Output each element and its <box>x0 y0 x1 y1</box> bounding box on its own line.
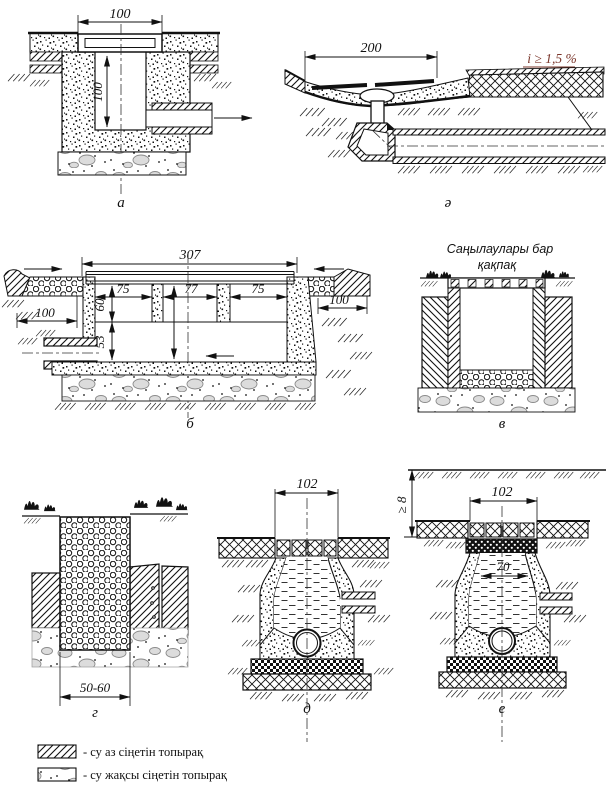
diagram-d-well-section: 102 ≥ 8 д <box>217 470 420 742</box>
dim-label-b-60: 60 <box>92 298 107 312</box>
dim-label-b-75r: 75 <box>252 281 266 296</box>
dim-label-b-75l: 75 <box>117 281 131 296</box>
pipe-stub <box>538 600 572 607</box>
dim-label-d-width: 102 <box>297 477 318 492</box>
slope-label: i ≥ 1,5 % <box>527 51 576 66</box>
pipe-stub <box>340 599 375 606</box>
pavement-left <box>30 33 78 52</box>
baffle <box>217 284 230 322</box>
ground-hachures <box>8 74 231 88</box>
permeable-soil <box>418 388 575 412</box>
diagram-letter-v: в <box>499 416 506 432</box>
shoulder-wedge <box>285 70 305 93</box>
dim-label-g-width: 50-60 <box>80 680 111 695</box>
pavement-left <box>219 538 275 558</box>
outlet-pipe <box>146 110 212 127</box>
legend: - су аз сіңетін топырақ - су жақсы сіңет… <box>38 745 228 782</box>
gravel-strip-left <box>22 277 83 296</box>
dim-label-b-width: 307 <box>179 248 202 263</box>
dim-label-b-100l: 100 <box>35 305 55 320</box>
gravel-bed <box>58 152 186 175</box>
diagram-letter-a: а <box>117 195 125 211</box>
dim-label-b-100r: 100 <box>329 292 349 307</box>
pit-wall-outer-right <box>545 297 572 388</box>
pit-wall-outer-left <box>422 297 448 388</box>
filter-layer <box>466 539 537 553</box>
concrete-pit-walls <box>62 52 190 152</box>
slotted-cover <box>448 278 545 288</box>
gravel-column <box>60 517 130 650</box>
drop-pipe <box>371 101 384 125</box>
diagram-letter-d: д <box>303 701 311 717</box>
grate-bar <box>375 81 434 85</box>
dim-label-d-depth: ≥ 8 <box>394 496 409 513</box>
diagram-letter-b: б <box>186 416 194 432</box>
cover-caption-line1: Саңылаулары бар <box>447 242 553 256</box>
diagram-v-pit-section: Саңылаулары бар қақпақ в <box>418 242 575 432</box>
drain-pipe-wall <box>393 157 605 164</box>
pavement-right <box>537 521 588 538</box>
diagram-letter-g: г <box>92 705 98 721</box>
diagram-e-well-section: 102 70 е <box>408 470 606 742</box>
road-base <box>466 72 603 97</box>
diagram-letter-e: е <box>499 701 506 717</box>
dim-label-a2-width: 200 <box>361 41 382 56</box>
drainage-structures-figure: 100 100 а 200 i ≥ 1,5 % <box>0 0 607 794</box>
inlet-pipe <box>28 346 97 361</box>
tank-floor <box>52 362 316 375</box>
dim-label-e-width: 102 <box>492 485 513 500</box>
gravel-bed <box>62 375 315 401</box>
well-cover-grate <box>277 540 336 556</box>
pit-wall-inner-right <box>533 288 545 388</box>
legend-text-low-permeability: - су аз сіңетін топырақ <box>83 745 204 759</box>
impermeable-soil-right <box>130 564 159 635</box>
foundation-slab <box>439 672 566 688</box>
technical-drawing-page: 100 100 а 200 i ≥ 1,5 % <box>0 0 607 794</box>
pavement-right <box>162 33 218 52</box>
dim-label-e-inner: 70 <box>497 559 511 574</box>
diagram-letter-a2: ә <box>445 195 452 211</box>
baffle <box>152 284 163 322</box>
gravel-layer <box>460 370 533 388</box>
pit-wall-inner-left <box>448 288 460 388</box>
cover-caption-line2: қақпақ <box>478 258 518 272</box>
diagram-a-inlet-section: 100 100 а <box>8 7 252 211</box>
dim-label-a-depth: 100 <box>90 82 105 102</box>
grate-bar <box>312 85 367 88</box>
dim-label-a-width: 100 <box>110 7 131 22</box>
drain-pipe-wall <box>393 129 605 135</box>
diagram-a2-road-section: 200 i ≥ 1,5 % ә <box>285 41 605 211</box>
dim-label-b-77: 77 <box>185 281 199 296</box>
pavement-right <box>338 538 388 558</box>
grass-tufts <box>24 497 188 511</box>
legend-swatch-high-permeability <box>38 768 76 781</box>
ground-hachures <box>414 472 599 478</box>
legend-text-high-permeability: - су жақсы сіңетін топырақ <box>83 768 228 782</box>
diagram-g-trench-section: 50-60 г <box>22 497 188 721</box>
impermeable-soil-right <box>162 566 188 635</box>
impermeable-soil-left <box>32 573 60 628</box>
pavement-left <box>417 521 468 538</box>
legend-swatch-low-permeability <box>38 745 76 758</box>
diagram-b-tank-section: 307 75 77 75 60 53 100 100 <box>2 248 372 432</box>
